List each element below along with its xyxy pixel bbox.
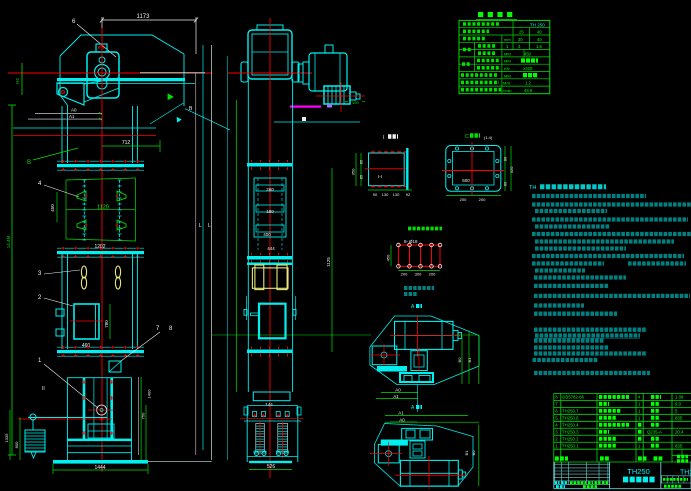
svg-text:TH250.7: TH250.7 bbox=[562, 409, 579, 414]
svg-text:526: 526 bbox=[267, 464, 276, 470]
svg-text:TH250.2: TH250.2 bbox=[562, 436, 579, 441]
svg-text:260: 260 bbox=[266, 187, 274, 192]
svg-text:TH250.4: TH250.4 bbox=[562, 423, 579, 428]
svg-text:460: 460 bbox=[82, 343, 91, 349]
svg-text:835: 835 bbox=[675, 443, 683, 448]
svg-text:835: 835 bbox=[675, 416, 683, 421]
svg-text:A0: A0 bbox=[399, 418, 405, 423]
svg-text:1400: 1400 bbox=[147, 389, 152, 399]
svg-text:TH250.3: TH250.3 bbox=[562, 429, 579, 434]
svg-text:B0: B0 bbox=[471, 450, 476, 456]
svg-text:85: 85 bbox=[359, 159, 364, 164]
svg-text:M/S: M/S bbox=[503, 81, 510, 86]
svg-text:r/min: r/min bbox=[503, 89, 511, 93]
svg-text:B1: B1 bbox=[464, 450, 469, 456]
svg-text:200: 200 bbox=[401, 272, 408, 277]
svg-text:8-: 8- bbox=[404, 239, 409, 244]
svg-text:1.6: 1.6 bbox=[536, 44, 542, 49]
svg-text:B: B bbox=[27, 160, 31, 166]
svg-text:200: 200 bbox=[429, 272, 436, 277]
svg-text:TH250.1: TH250.1 bbox=[562, 443, 579, 448]
svg-text:200: 200 bbox=[460, 197, 467, 202]
svg-text:1173: 1173 bbox=[137, 14, 151, 20]
svg-text:1.2: 1.2 bbox=[525, 81, 531, 86]
svg-text:800: 800 bbox=[14, 441, 19, 448]
svg-text:90: 90 bbox=[373, 192, 378, 197]
svg-text:320: 320 bbox=[509, 166, 514, 173]
svg-text:1125: 1125 bbox=[326, 257, 331, 267]
svg-text:MM: MM bbox=[504, 73, 511, 78]
svg-text:780: 780 bbox=[104, 320, 109, 328]
svg-text:(1:4): (1:4) bbox=[484, 135, 493, 140]
svg-text:48.5: 48.5 bbox=[524, 88, 533, 93]
svg-text:A1: A1 bbox=[69, 114, 75, 119]
svg-text:180: 180 bbox=[266, 209, 274, 214]
svg-text:TH2: TH2 bbox=[680, 470, 691, 477]
svg-text:450: 450 bbox=[386, 254, 391, 261]
svg-text:I-I: I-I bbox=[378, 174, 382, 179]
svg-text:750: 750 bbox=[141, 412, 146, 419]
svg-text:TH250: TH250 bbox=[627, 467, 650, 476]
svg-text:B0: B0 bbox=[457, 357, 462, 363]
svg-text:40: 40 bbox=[537, 30, 542, 35]
svg-text:130: 130 bbox=[382, 192, 389, 197]
svg-text:600: 600 bbox=[462, 178, 470, 183]
svg-text:TH: TH bbox=[529, 185, 536, 191]
svg-text:350: 350 bbox=[351, 168, 356, 175]
svg-text:MM: MM bbox=[504, 51, 511, 56]
svg-text:A1: A1 bbox=[393, 394, 399, 399]
svg-text:20.4: 20.4 bbox=[675, 429, 684, 434]
svg-text:9.0: 9.0 bbox=[675, 402, 682, 407]
svg-text:≥320: ≥320 bbox=[523, 66, 533, 71]
svg-text:1335: 1335 bbox=[4, 433, 9, 443]
svg-text:400: 400 bbox=[263, 232, 271, 237]
svg-text:1444: 1444 bbox=[94, 465, 105, 471]
svg-text:A1: A1 bbox=[398, 411, 404, 416]
svg-text:TH250.6: TH250.6 bbox=[562, 416, 579, 421]
svg-text:H2: H2 bbox=[15, 78, 20, 84]
svg-text:GB5782-86: GB5782-86 bbox=[562, 395, 585, 400]
svg-text:B1: B1 bbox=[467, 357, 472, 363]
svg-text:30: 30 bbox=[518, 37, 523, 42]
svg-text:200: 200 bbox=[479, 197, 486, 202]
svg-text:712: 712 bbox=[122, 140, 131, 146]
svg-text:444: 444 bbox=[267, 246, 275, 251]
svg-text:450: 450 bbox=[524, 51, 532, 56]
svg-text:1120: 1120 bbox=[97, 205, 109, 211]
svg-text:A0: A0 bbox=[71, 108, 77, 113]
svg-text:L: L bbox=[199, 223, 202, 229]
svg-text:450: 450 bbox=[50, 204, 55, 212]
svg-text:80: 80 bbox=[503, 181, 508, 186]
svg-text:C: C bbox=[465, 134, 469, 140]
svg-text:1202: 1202 bbox=[94, 244, 105, 250]
svg-text:A0: A0 bbox=[395, 388, 401, 393]
svg-text:II: II bbox=[42, 386, 45, 392]
svg-text:130: 130 bbox=[393, 192, 400, 197]
svg-text:40: 40 bbox=[537, 37, 542, 42]
svg-text:92: 92 bbox=[406, 192, 411, 197]
svg-text:25: 25 bbox=[519, 30, 524, 35]
svg-text:300: 300 bbox=[415, 272, 422, 277]
svg-text:1.08: 1.08 bbox=[675, 395, 684, 400]
svg-text:L: L bbox=[208, 223, 211, 229]
svg-text:14.4M: 14.4M bbox=[6, 235, 11, 248]
svg-text:TH 250: TH 250 bbox=[530, 22, 545, 27]
svg-text:85: 85 bbox=[359, 174, 364, 179]
svg-text:KN: KN bbox=[504, 66, 510, 71]
svg-text:80: 80 bbox=[503, 156, 508, 161]
svg-text:100: 100 bbox=[352, 100, 359, 105]
svg-text:mm: mm bbox=[504, 37, 511, 42]
svg-text:144: 144 bbox=[265, 402, 273, 407]
svg-text:MM: MM bbox=[504, 59, 511, 64]
svg-text:Q235-A: Q235-A bbox=[647, 429, 662, 434]
